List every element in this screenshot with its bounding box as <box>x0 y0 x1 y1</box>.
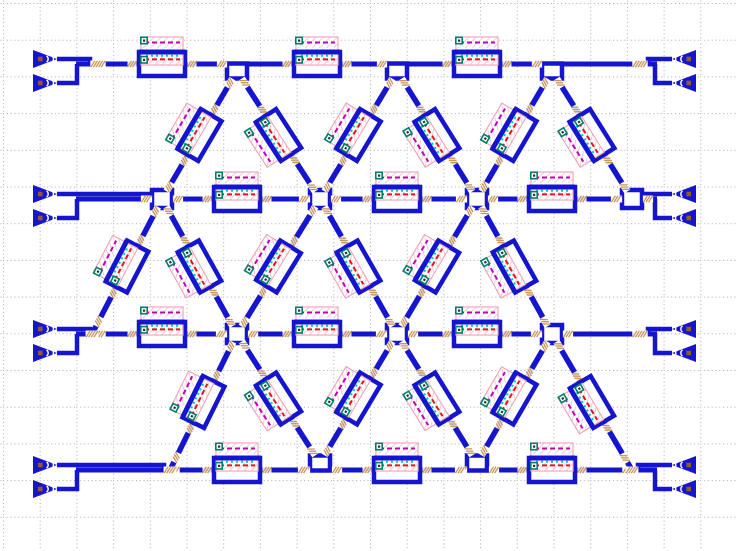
coupler-marker <box>686 216 691 221</box>
coupler-marker <box>38 327 43 332</box>
coupler-marker <box>38 81 43 86</box>
coupler-marker <box>38 487 43 492</box>
node-coupler[interactable] <box>387 64 407 79</box>
transition-ticks <box>362 196 371 203</box>
heater <box>454 37 500 65</box>
transition-ticks <box>342 61 351 68</box>
transition-ticks <box>643 196 653 203</box>
transition-ticks <box>217 61 227 68</box>
coupler-marker <box>686 327 691 332</box>
node-coupler[interactable] <box>467 456 487 471</box>
transition-ticks <box>299 196 309 203</box>
coupler-marker <box>38 463 43 468</box>
coupler-marker <box>38 192 43 197</box>
heater <box>374 172 420 200</box>
transition-ticks <box>127 331 136 338</box>
transition-ticks <box>517 196 526 203</box>
transition-ticks <box>632 331 647 338</box>
transition-ticks <box>532 61 542 68</box>
node-coupler[interactable] <box>227 64 247 79</box>
transition-ticks <box>187 61 196 68</box>
coupler-marker <box>38 216 43 221</box>
transition-ticks <box>455 467 465 474</box>
coupler-marker <box>686 463 691 468</box>
layout-svg[interactable] <box>0 0 737 551</box>
transition-ticks <box>422 196 431 203</box>
transition-ticks <box>164 467 177 474</box>
node-coupler[interactable] <box>542 64 562 79</box>
transition-ticks <box>456 196 466 203</box>
transition-ticks <box>376 331 386 338</box>
transition-ticks <box>90 61 105 68</box>
transition-ticks <box>531 331 541 338</box>
transition-ticks <box>377 61 387 68</box>
heater <box>139 307 185 335</box>
transition-ticks <box>489 467 499 474</box>
heater <box>374 443 420 471</box>
layout-canvas[interactable] <box>0 0 737 551</box>
transition-ticks <box>563 331 573 338</box>
transition-ticks <box>262 196 271 203</box>
transition-ticks <box>517 467 526 474</box>
transition-ticks <box>86 331 99 338</box>
transition-ticks <box>422 467 431 474</box>
coupler-marker <box>686 81 691 86</box>
heater <box>454 307 500 335</box>
coupler-marker <box>686 192 691 197</box>
transition-ticks <box>216 331 226 338</box>
heater <box>294 307 340 335</box>
transition-ticks <box>502 331 511 338</box>
transition-ticks <box>442 61 451 68</box>
transition-ticks <box>442 331 451 338</box>
transition-ticks <box>298 467 308 474</box>
transition-ticks <box>332 467 342 474</box>
transition-ticks <box>202 196 211 203</box>
coupler-marker <box>686 351 691 356</box>
transition-ticks <box>362 467 371 474</box>
transition-ticks <box>282 61 291 68</box>
transition-ticks <box>488 196 498 203</box>
heater <box>529 172 575 200</box>
heater <box>214 443 260 471</box>
heater <box>214 172 260 200</box>
heater <box>529 443 575 471</box>
heater <box>294 37 340 65</box>
transition-ticks <box>611 196 621 203</box>
transition-ticks <box>577 467 586 474</box>
transition-ticks <box>626 467 639 474</box>
transition-ticks <box>282 331 291 338</box>
node-coupler[interactable] <box>310 456 330 471</box>
coupler-marker <box>38 57 43 62</box>
transition-ticks <box>187 331 196 338</box>
coupler-marker <box>686 57 691 62</box>
transition-ticks <box>331 196 341 203</box>
transition-ticks <box>342 331 351 338</box>
transition-ticks <box>408 331 418 338</box>
transition-ticks <box>577 196 586 203</box>
transition-ticks <box>173 196 183 203</box>
transition-ticks <box>502 61 511 68</box>
transition-ticks <box>262 467 271 474</box>
coupler-marker <box>38 351 43 356</box>
transition-ticks <box>248 331 258 338</box>
coupler-marker <box>686 487 691 492</box>
heater <box>139 37 185 65</box>
transition-ticks <box>632 61 647 68</box>
transition-ticks <box>202 467 211 474</box>
transition-ticks <box>127 61 136 68</box>
transition-ticks <box>141 196 151 203</box>
